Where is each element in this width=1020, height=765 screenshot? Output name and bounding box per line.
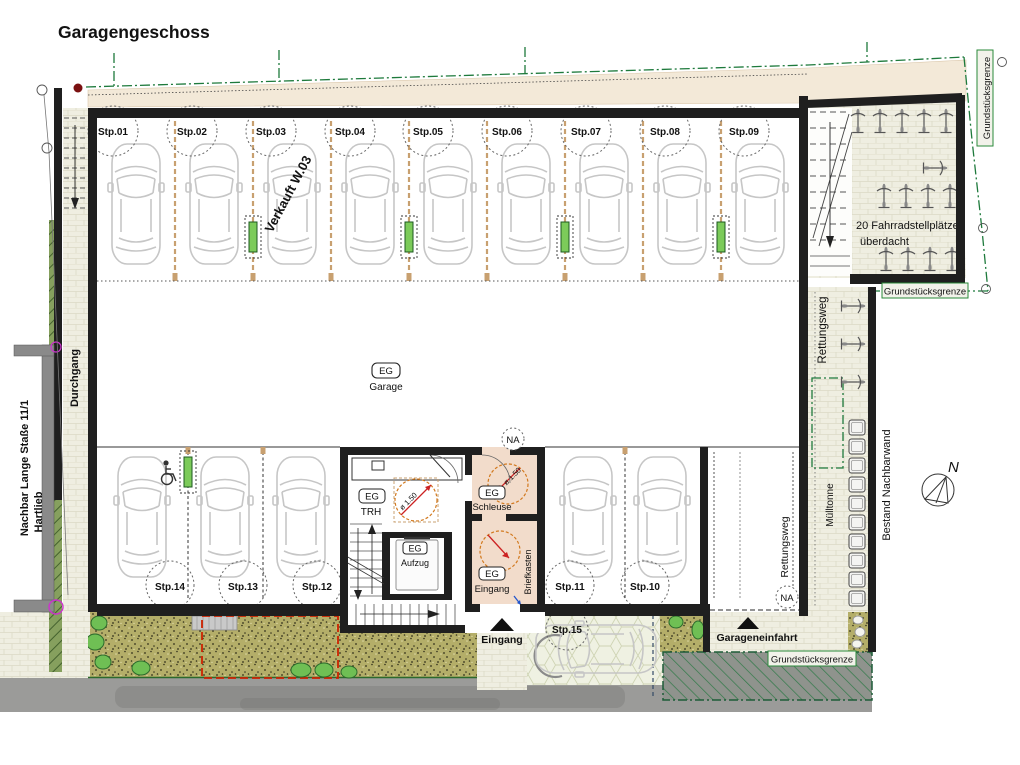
rescue-route-label-inner: Rettungsweg xyxy=(779,516,791,577)
svg-text:Stp.03: Stp.03 xyxy=(256,127,286,138)
svg-text:Stp.01: Stp.01 xyxy=(98,127,128,138)
svg-text:Stp.07: Stp.07 xyxy=(571,127,601,138)
floor-plan: Stp.15 Grundstücksgrenze Nachbar Lange S… xyxy=(0,0,1020,765)
existing-neighbor-area: Grundstücksgrenze xyxy=(663,651,872,700)
svg-text:EG: EG xyxy=(485,569,499,580)
page-title: Garagengeschoss xyxy=(58,22,210,42)
property-line-label-bottom: Grundstücksgrenze xyxy=(771,655,853,666)
svg-text:EG: EG xyxy=(365,492,379,503)
grate xyxy=(192,616,237,630)
rescue-route-label-outer: Rettungsweg xyxy=(817,296,829,363)
svg-text:Stp.09: Stp.09 xyxy=(729,127,759,138)
neighbor-label-2: Hartlieb xyxy=(33,491,45,532)
neighbor-boundary-wall xyxy=(868,287,876,652)
svg-text:Garage: Garage xyxy=(369,382,403,393)
svg-text:Stp.11: Stp.11 xyxy=(555,582,585,593)
svg-text:Stp.04: Stp.04 xyxy=(335,127,365,138)
svg-text:Stp.12: Stp.12 xyxy=(302,582,332,593)
svg-text:Stp.10: Stp.10 xyxy=(630,582,660,593)
svg-text:EG: EG xyxy=(408,544,421,554)
svg-text:Stp.14: Stp.14 xyxy=(155,582,185,593)
svg-text:EG: EG xyxy=(379,366,393,377)
svg-text:Stp.05: Stp.05 xyxy=(413,127,443,138)
svg-text:Stp.13: Stp.13 xyxy=(228,582,258,593)
stall-label-outdoor: Stp.15 xyxy=(552,625,582,636)
elevator-label: Aufzug xyxy=(401,558,429,568)
bike-covered-label: überdacht xyxy=(860,236,909,248)
rescue-walkway: Rettungsweg Mülltonne xyxy=(808,287,876,652)
corner-point xyxy=(74,84,83,93)
airlock-label: Schleuse xyxy=(472,502,511,513)
bike-count-label: 20 Fahrradstellplätze xyxy=(856,220,959,232)
svg-text:Stp.06: Stp.06 xyxy=(492,127,522,138)
mailbox-label: Briefkasten xyxy=(523,549,533,594)
property-line-label-mid: Grundstücksgrenze xyxy=(882,283,968,298)
na-label-lower: NA xyxy=(780,593,794,604)
svg-text:Stp.02: Stp.02 xyxy=(177,127,207,138)
svg-text:Grundstücksgrenze: Grundstücksgrenze xyxy=(982,57,993,139)
neighbor-label-1: Nachbar Lange Staße 11/1 xyxy=(19,400,31,536)
svg-text:EG: EG xyxy=(485,488,499,499)
floor-plan-canvas: Stp.15 Grundstücksgrenze Nachbar Lange S… xyxy=(0,0,1020,765)
outdoor-parking-area: Stp.15 xyxy=(527,608,663,697)
svg-text:Grundstücksgrenze: Grundstücksgrenze xyxy=(884,287,966,298)
svg-text:N: N xyxy=(948,459,959,476)
passage-label: Durchgang xyxy=(69,349,81,407)
entry-room-label: Eingang xyxy=(475,584,510,595)
interior-stairs-bike xyxy=(808,108,852,276)
property-line-label-right: Grundstücksgrenze xyxy=(977,50,993,146)
elevator: EG Aufzug xyxy=(382,532,452,600)
svg-text:Stp.08: Stp.08 xyxy=(650,127,680,138)
bike-parking-area: 20 Fahrradstellplätze überdacht xyxy=(806,93,966,284)
svg-text:Garageneinfahrt: Garageneinfahrt xyxy=(716,632,798,644)
stairwell-label: TRH xyxy=(361,507,382,518)
trash-label: Mülltonne xyxy=(825,483,836,527)
na-label-upper: NA xyxy=(506,435,520,446)
svg-text:Eingang: Eingang xyxy=(481,634,522,646)
stair-core: ø 1.50 EG TRH EG Aufzug xyxy=(340,447,545,633)
existing-wall-label: Bestand Nachbarwand xyxy=(881,429,893,540)
